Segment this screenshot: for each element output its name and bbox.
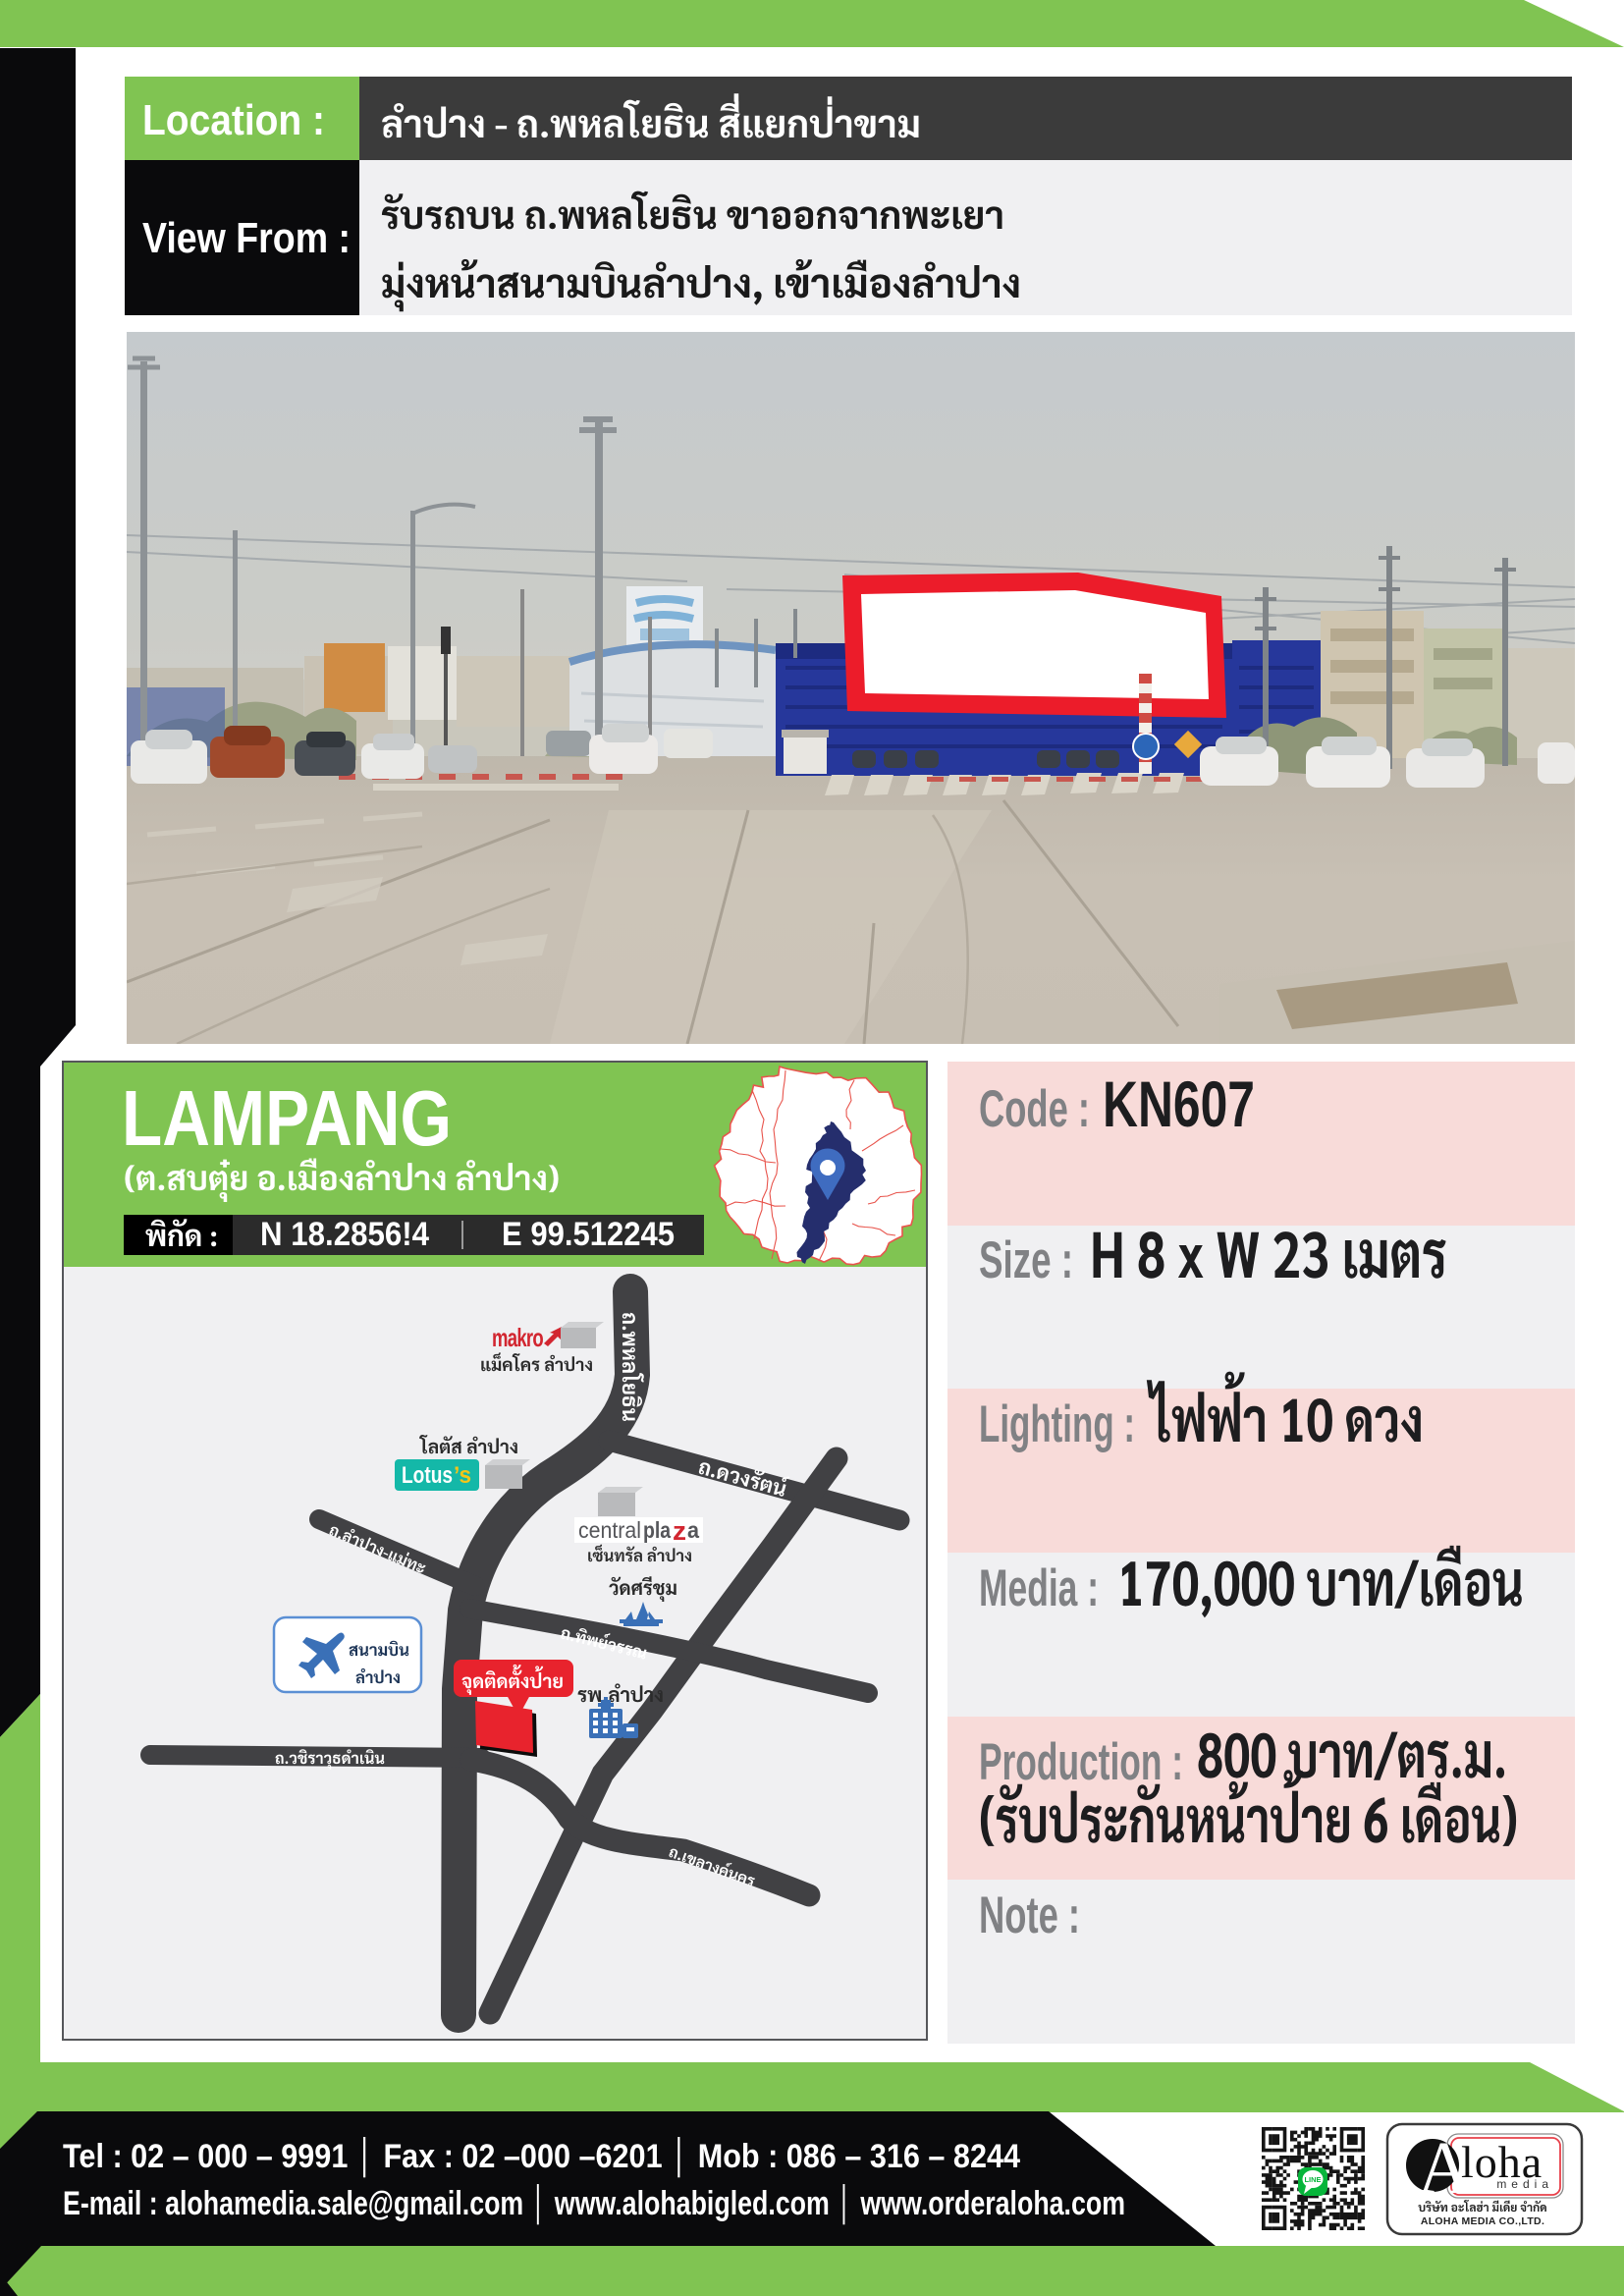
svg-text:E 99.512245: E 99.512245 bbox=[502, 1216, 675, 1253]
svg-text:Note :: Note : bbox=[979, 1886, 1080, 1944]
svg-text:media: media bbox=[1496, 2177, 1553, 2191]
svg-text:E-mail : alohamedia.sale@gmail: E-mail : alohamedia.sale@gmail.com │ www… bbox=[63, 2184, 1125, 2225]
svg-text:ALOHA MEDIA CO.,LTD.: ALOHA MEDIA CO.,LTD. bbox=[1421, 2215, 1544, 2227]
svg-text:Production :: Production : bbox=[979, 1733, 1183, 1791]
svg-text:Tel : 02 – 000 – 9991 │ Fax :: Tel : 02 – 000 – 9991 │ Fax : 02 –000 –6… bbox=[63, 2137, 1020, 2178]
svg-text:Lighting :: Lighting : bbox=[979, 1395, 1135, 1453]
svg-text:’s: ’s bbox=[454, 1462, 471, 1489]
svg-text:LAMPANG: LAMPANG bbox=[122, 1074, 452, 1162]
svg-text:LINE: LINE bbox=[1304, 2175, 1321, 2184]
svg-text:View From :: View From : bbox=[142, 214, 351, 262]
svg-text:central: central bbox=[578, 1517, 641, 1543]
svg-text:pla: pla bbox=[643, 1517, 671, 1543]
svg-text:N 18.2856!4: N 18.2856!4 bbox=[260, 1216, 429, 1253]
svg-text:Lotus: Lotus bbox=[402, 1462, 453, 1489]
svg-text:Code :: Code : bbox=[979, 1080, 1090, 1138]
svg-text:a: a bbox=[687, 1517, 699, 1543]
svg-text:Media :: Media : bbox=[979, 1559, 1099, 1617]
svg-text:Location :: Location : bbox=[142, 96, 325, 144]
svg-text:z: z bbox=[673, 1516, 686, 1546]
svg-text:KN607: KN607 bbox=[1103, 1067, 1255, 1140]
svg-text:Size :: Size : bbox=[979, 1231, 1073, 1289]
svg-text:makro: makro bbox=[492, 1323, 543, 1352]
